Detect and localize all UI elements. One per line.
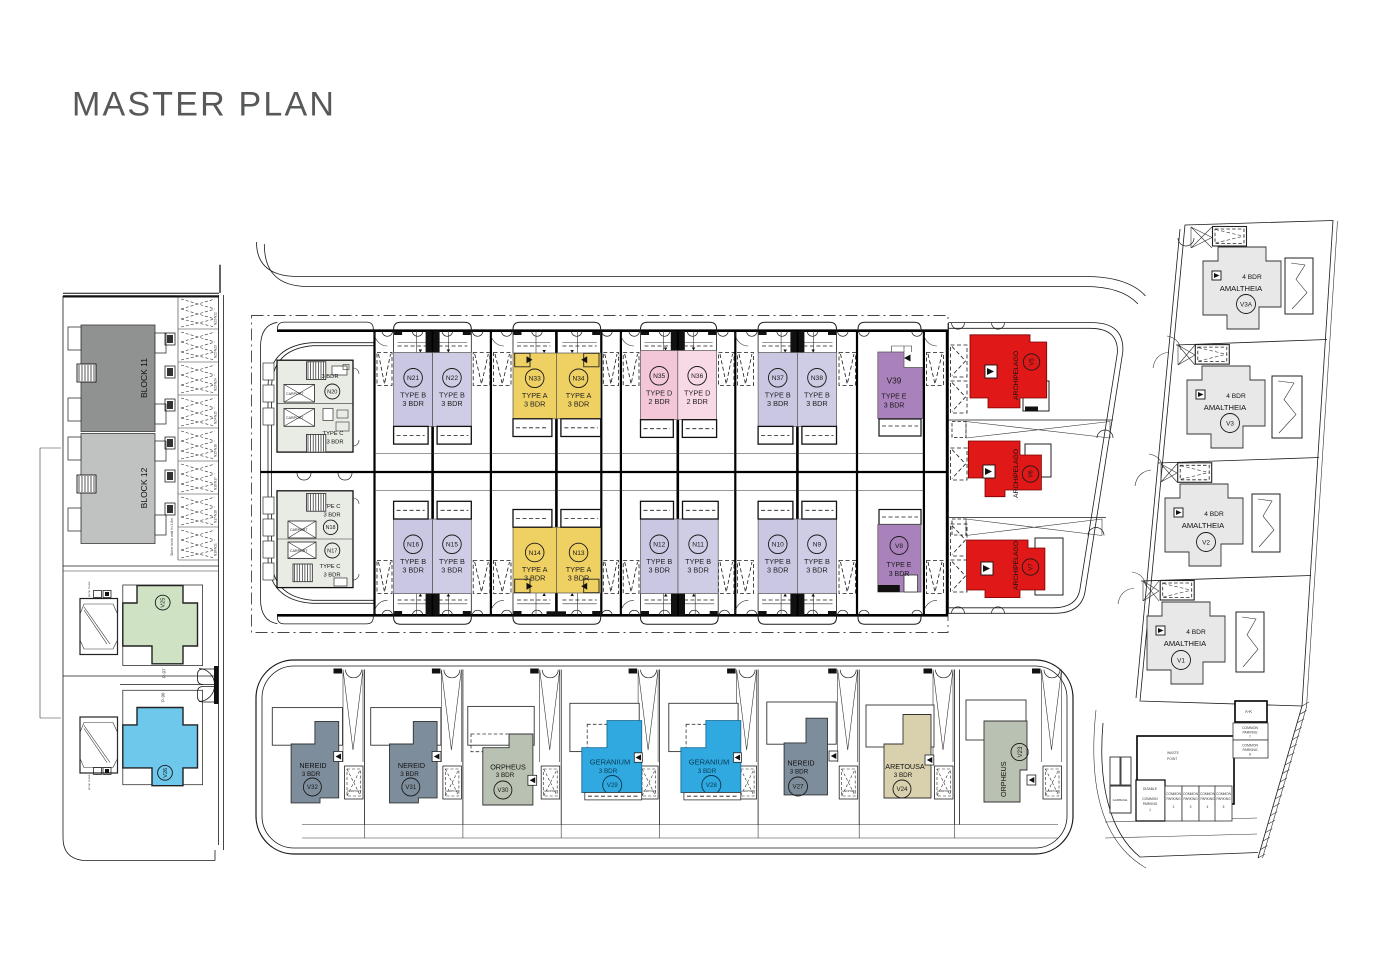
svg-text:3 BDR: 3 BDR bbox=[302, 771, 321, 778]
svg-text:V30: V30 bbox=[497, 787, 509, 794]
svg-text:NEREID: NEREID bbox=[299, 761, 326, 770]
svg-text:3 BDR: 3 BDR bbox=[496, 772, 515, 779]
svg-text:CARPORT: CARPORT bbox=[642, 789, 657, 793]
svg-text:PARKING: PARKING bbox=[1242, 748, 1257, 752]
svg-text:ARETOUSA: ARETOUSA bbox=[885, 762, 925, 771]
svg-text:CARPORT: CARPORT bbox=[445, 789, 460, 793]
svg-text:A-K: A-K bbox=[1245, 709, 1252, 714]
svg-text:3 BDR: 3 BDR bbox=[524, 399, 546, 408]
svg-text:ORPHEUS: ORPHEUS bbox=[490, 763, 526, 772]
svg-text:7: 7 bbox=[1249, 735, 1251, 739]
svg-text:4 BDR: 4 BDR bbox=[1186, 629, 1206, 636]
svg-text:CARPORT: CARPORT bbox=[1045, 789, 1060, 793]
svg-text:2: 2 bbox=[1173, 805, 1175, 809]
svg-text:TYPE E: TYPE E bbox=[882, 394, 907, 401]
svg-text:GERANIUM: GERANIUM bbox=[590, 758, 630, 767]
svg-text:N16-N17: N16-N17 bbox=[214, 477, 218, 490]
svg-text:3 BDR: 3 BDR bbox=[402, 565, 424, 574]
svg-text:4: 4 bbox=[1207, 805, 1209, 809]
svg-text:3 BDR: 3 BDR bbox=[790, 769, 809, 776]
svg-text:6: 6 bbox=[1249, 753, 1251, 757]
svg-text:PARKING: PARKING bbox=[1200, 797, 1215, 801]
svg-text:CARPORT: CARPORT bbox=[290, 528, 308, 532]
svg-text:N9: N9 bbox=[813, 542, 822, 549]
svg-text:3 BDR: 3 BDR bbox=[767, 565, 789, 574]
svg-text:N34: N34 bbox=[572, 376, 584, 383]
svg-text:N16: N16 bbox=[407, 542, 419, 549]
svg-text:V6: V6 bbox=[1029, 470, 1035, 478]
svg-text:N12: N12 bbox=[653, 542, 665, 549]
svg-text:V39: V39 bbox=[887, 376, 902, 386]
svg-text:3 BDR: 3 BDR bbox=[400, 771, 419, 778]
svg-text:1: 1 bbox=[1149, 808, 1151, 812]
svg-text:3 BDR: 3 BDR bbox=[806, 565, 828, 574]
svg-text:COMMON: COMMON bbox=[1200, 792, 1216, 796]
svg-text:BLOCK 12: BLOCK 12 bbox=[139, 467, 149, 508]
svg-text:N37: N37 bbox=[772, 375, 784, 382]
svg-text:3 BDR: 3 BDR bbox=[806, 399, 828, 408]
svg-text:3 BDR: 3 BDR bbox=[323, 513, 340, 519]
svg-text:V7: V7 bbox=[1029, 563, 1035, 571]
svg-text:CARPORT: CARPORT bbox=[937, 789, 952, 793]
svg-text:V28: V28 bbox=[706, 782, 718, 789]
svg-text:N13: N13 bbox=[572, 550, 584, 557]
svg-text:3: 3 bbox=[1190, 805, 1192, 809]
svg-text:2 BDR: 2 BDR bbox=[686, 397, 708, 406]
svg-text:pump house: pump house bbox=[87, 774, 91, 790]
svg-text:N15: N15 bbox=[446, 542, 458, 549]
svg-text:V2: V2 bbox=[1202, 539, 1210, 546]
svg-text:3 BDR: 3 BDR bbox=[524, 574, 546, 583]
svg-text:N22-N23: N22-N23 bbox=[214, 345, 218, 358]
svg-text:pump house: pump house bbox=[87, 581, 91, 597]
svg-text:NEREID: NEREID bbox=[787, 759, 814, 768]
svg-text:Stone brick wall h=1.8m: Stone brick wall h=1.8m bbox=[170, 518, 174, 556]
svg-text:V23: V23 bbox=[1018, 746, 1024, 757]
svg-text:V24: V24 bbox=[896, 786, 908, 793]
svg-text:PARKING: PARKING bbox=[1166, 797, 1181, 801]
svg-text:CARPORT: CARPORT bbox=[286, 392, 304, 396]
svg-text:AMALTHEIA: AMALTHEIA bbox=[1220, 284, 1263, 293]
svg-text:N35: N35 bbox=[653, 373, 665, 380]
svg-text:V3A: V3A bbox=[1240, 301, 1253, 308]
svg-text:N33: N33 bbox=[529, 376, 541, 383]
svg-text:ARCHIPELAGO: ARCHIPELAGO bbox=[1013, 449, 1020, 498]
svg-text:CARPORT: CARPORT bbox=[286, 416, 304, 420]
svg-text:N20: N20 bbox=[327, 390, 337, 396]
svg-text:N15-N16: N15-N16 bbox=[214, 444, 218, 457]
svg-text:N11: N11 bbox=[692, 542, 704, 549]
svg-text:GARBAGE: GARBAGE bbox=[1113, 798, 1128, 802]
svg-text:3 BDR: 3 BDR bbox=[568, 574, 590, 583]
svg-text:V26: V26 bbox=[163, 768, 169, 778]
svg-text:V1: V1 bbox=[1177, 657, 1185, 664]
svg-text:3 BDR: 3 BDR bbox=[326, 440, 343, 446]
svg-text:N21-N22: N21-N22 bbox=[214, 312, 218, 325]
svg-text:V3: V3 bbox=[1226, 420, 1234, 427]
svg-text:3 BDR: 3 BDR bbox=[323, 573, 340, 579]
svg-text:3 BDR: 3 BDR bbox=[767, 399, 789, 408]
svg-text:PARKING: PARKING bbox=[1183, 797, 1198, 801]
svg-text:CARPORT: CARPORT bbox=[543, 789, 558, 793]
svg-text:CARPORT: CARPORT bbox=[841, 789, 856, 793]
svg-text:N14: N14 bbox=[529, 550, 541, 557]
svg-text:N22: N22 bbox=[446, 375, 458, 382]
svg-text:N23-N24: N23-N24 bbox=[214, 378, 218, 391]
svg-text:N21: N21 bbox=[407, 375, 419, 382]
svg-text:AMALTHEIA: AMALTHEIA bbox=[1204, 403, 1247, 412]
svg-text:3 BDR: 3 BDR bbox=[698, 768, 717, 775]
svg-text:N17-N18: N17-N18 bbox=[214, 510, 218, 523]
svg-text:3 BDR: 3 BDR bbox=[441, 399, 463, 408]
svg-text:TYPE E: TYPE E bbox=[887, 562, 912, 569]
svg-text:COMMON: COMMON bbox=[1142, 797, 1158, 801]
svg-text:ARCHIPELAGO: ARCHIPELAGO bbox=[1013, 351, 1020, 400]
svg-text:POINT: POINT bbox=[1167, 757, 1177, 761]
svg-text:3 BDR: 3 BDR bbox=[649, 565, 671, 574]
svg-text:3 BDR: 3 BDR bbox=[402, 399, 424, 408]
svg-text:TYPE C: TYPE C bbox=[320, 564, 341, 570]
svg-text:V27: V27 bbox=[792, 784, 804, 791]
svg-text:AMALTHEIA: AMALTHEIA bbox=[1164, 639, 1207, 648]
svg-text:N36: N36 bbox=[691, 373, 703, 380]
svg-text:GERANIUM: GERANIUM bbox=[689, 758, 729, 767]
svg-text:COMMON: COMMON bbox=[1216, 792, 1232, 796]
svg-text:DISABLE: DISABLE bbox=[1143, 787, 1158, 791]
svg-text:PARKING: PARKING bbox=[1143, 802, 1158, 806]
svg-text:V5: V5 bbox=[1030, 358, 1036, 366]
svg-text:V25: V25 bbox=[161, 598, 167, 608]
svg-text:PARKING: PARKING bbox=[1242, 731, 1257, 735]
svg-text:V29: V29 bbox=[607, 782, 619, 789]
svg-text:CARPORT: CARPORT bbox=[347, 789, 362, 793]
svg-text:WASTE: WASTE bbox=[1167, 751, 1180, 755]
svg-text:COMMON: COMMON bbox=[1183, 792, 1199, 796]
svg-text:4 BDR: 4 BDR bbox=[1242, 274, 1262, 281]
svg-text:N17: N17 bbox=[327, 549, 337, 555]
svg-text:MASTER PLAN: MASTER PLAN bbox=[72, 86, 336, 124]
svg-text:P-96: P-96 bbox=[161, 692, 166, 702]
svg-text:V31: V31 bbox=[405, 784, 417, 791]
svg-text:3 BDR: 3 BDR bbox=[889, 571, 910, 578]
svg-text:COMMON: COMMON bbox=[1166, 792, 1182, 796]
svg-text:N38: N38 bbox=[811, 375, 823, 382]
svg-text:3 BDR: 3 BDR bbox=[599, 768, 618, 775]
svg-text:ORPHEUS: ORPHEUS bbox=[999, 761, 1008, 797]
svg-text:N18: N18 bbox=[326, 525, 336, 531]
svg-text:V32: V32 bbox=[307, 784, 319, 791]
svg-text:PARKING: PARKING bbox=[1216, 797, 1231, 801]
svg-text:3 BDR: 3 BDR bbox=[687, 565, 709, 574]
svg-text:N10: N10 bbox=[772, 542, 784, 549]
svg-text:ARCHIPELAGO: ARCHIPELAGO bbox=[1013, 541, 1020, 590]
svg-text:COMMON: COMMON bbox=[1242, 744, 1258, 748]
svg-text:2 BDR: 2 BDR bbox=[648, 397, 670, 406]
svg-text:3 BDR: 3 BDR bbox=[884, 403, 905, 410]
svg-text:CARPORT: CARPORT bbox=[290, 549, 308, 553]
svg-text:NEREID: NEREID bbox=[398, 761, 425, 770]
svg-text:3 BDR: 3 BDR bbox=[568, 399, 590, 408]
svg-text:CARPORT: CARPORT bbox=[740, 789, 755, 793]
svg-text:3 BDR: 3 BDR bbox=[894, 772, 913, 779]
svg-text:4 BDR: 4 BDR bbox=[1226, 393, 1246, 400]
svg-text:3 BDR: 3 BDR bbox=[441, 565, 463, 574]
svg-text:AMALTHEIA: AMALTHEIA bbox=[1182, 521, 1225, 530]
svg-text:3 BDR: 3 BDR bbox=[321, 374, 338, 380]
svg-text:N18-N21: N18-N21 bbox=[214, 543, 218, 556]
svg-text:P-97: P-97 bbox=[162, 668, 167, 678]
svg-text:N24-N15: N24-N15 bbox=[214, 411, 218, 424]
svg-text:COMMON: COMMON bbox=[1242, 726, 1258, 730]
svg-text:V8: V8 bbox=[895, 543, 903, 550]
svg-text:4 BDR: 4 BDR bbox=[1204, 511, 1224, 518]
svg-text:BLOCK 11: BLOCK 11 bbox=[139, 358, 149, 398]
svg-text:5: 5 bbox=[1223, 805, 1225, 809]
